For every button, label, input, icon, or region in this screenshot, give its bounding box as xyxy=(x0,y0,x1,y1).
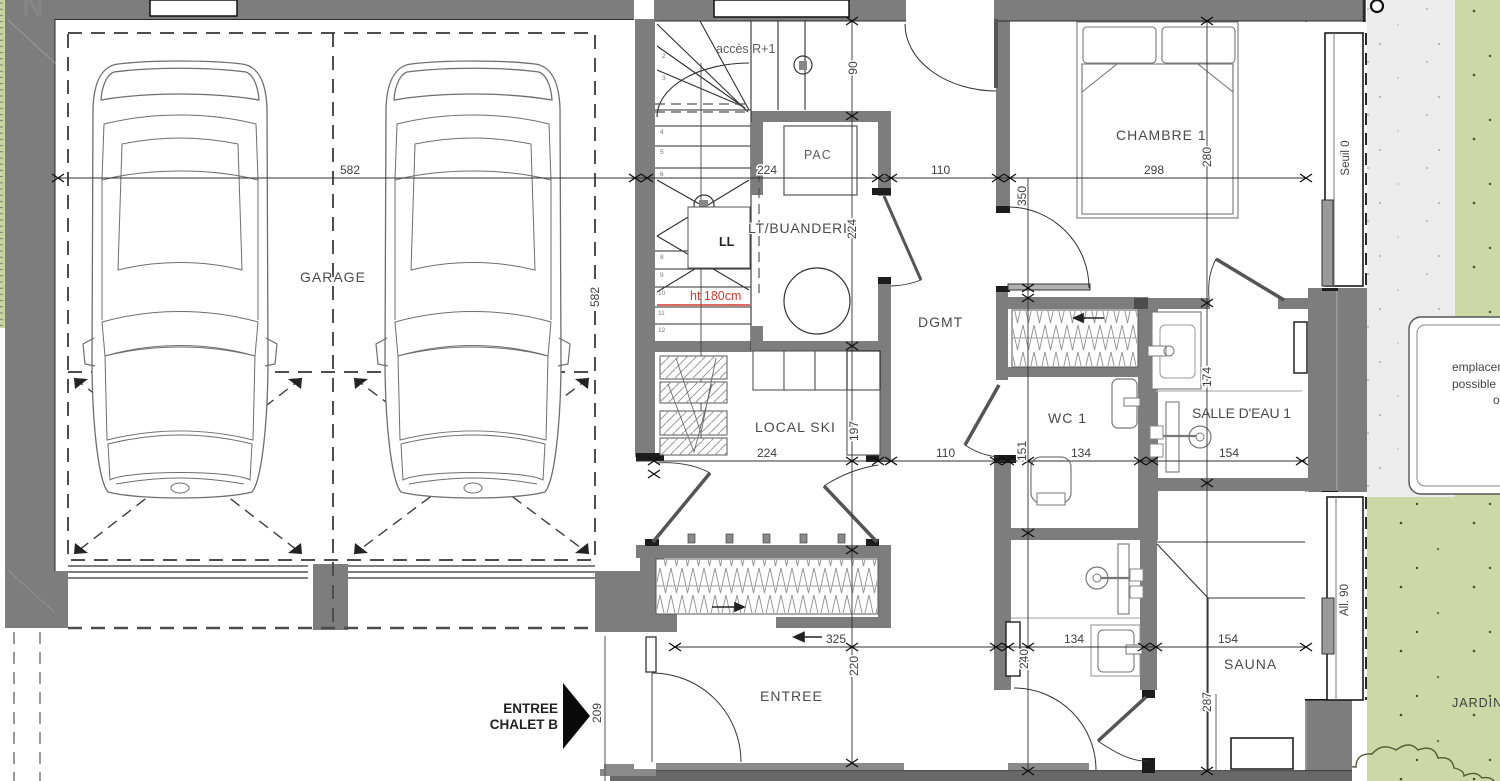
svg-text:110: 110 xyxy=(936,446,955,460)
svg-text:emplacement: emplacement xyxy=(1452,360,1500,374)
svg-text:280: 280 xyxy=(1200,147,1214,167)
svg-text:90: 90 xyxy=(846,61,860,75)
svg-text:ou: ou xyxy=(1493,393,1500,407)
svg-text:582: 582 xyxy=(340,163,360,177)
svg-text:accès R+1: accès R+1 xyxy=(716,42,775,56)
svg-text:224: 224 xyxy=(757,163,777,177)
svg-text:SAUNA: SAUNA xyxy=(1224,656,1277,672)
svg-text:All. 90: All. 90 xyxy=(1339,584,1351,616)
svg-text:110: 110 xyxy=(931,163,950,177)
svg-text:ht 180cm: ht 180cm xyxy=(690,289,741,303)
svg-text:298: 298 xyxy=(1144,163,1164,177)
svg-text:154: 154 xyxy=(1218,632,1238,646)
svg-text:154: 154 xyxy=(1219,446,1239,460)
svg-text:174: 174 xyxy=(1200,367,1214,387)
svg-text:224: 224 xyxy=(845,219,859,239)
svg-text:Seuil 0: Seuil 0 xyxy=(1340,140,1352,175)
svg-text:8: 8 xyxy=(660,254,664,261)
svg-text:582: 582 xyxy=(588,287,602,307)
svg-text:197: 197 xyxy=(847,421,861,441)
svg-text:13: 13 xyxy=(658,345,666,352)
svg-text:CHALET B: CHALET B xyxy=(490,717,558,732)
svg-text:10: 10 xyxy=(658,290,666,297)
svg-text:9: 9 xyxy=(660,272,664,279)
svg-text:151: 151 xyxy=(1015,441,1029,461)
svg-text:325: 325 xyxy=(826,632,846,646)
svg-text:DGMT: DGMT xyxy=(918,314,963,330)
svg-text:11: 11 xyxy=(658,310,665,317)
svg-text:5: 5 xyxy=(660,149,664,156)
svg-text:LT/BUANDERIE: LT/BUANDERIE xyxy=(748,220,858,236)
svg-text:N: N xyxy=(22,0,44,23)
svg-text:ENTREE: ENTREE xyxy=(760,688,823,704)
svg-text:JARDIN: JARDIN xyxy=(1452,696,1500,710)
svg-text:possible: possible xyxy=(1452,377,1496,391)
svg-text:2: 2 xyxy=(662,53,666,60)
svg-text:209: 209 xyxy=(590,703,604,723)
svg-text:240: 240 xyxy=(1017,649,1031,669)
svg-text:GARAGE: GARAGE xyxy=(300,269,366,285)
svg-text:4: 4 xyxy=(660,129,664,136)
svg-text:12: 12 xyxy=(658,327,666,334)
svg-text:ENTREE: ENTREE xyxy=(503,701,558,716)
svg-text:LOCAL SKI: LOCAL SKI xyxy=(755,419,836,435)
svg-text:3: 3 xyxy=(662,75,666,82)
svg-text:134: 134 xyxy=(1064,632,1084,646)
svg-text:WC 1: WC 1 xyxy=(1048,410,1087,426)
svg-text:134: 134 xyxy=(1071,446,1091,460)
svg-text:PAC: PAC xyxy=(804,148,832,162)
svg-text:6: 6 xyxy=(660,171,664,178)
svg-text:287: 287 xyxy=(1200,692,1214,712)
svg-text:CHAMBRE 1: CHAMBRE 1 xyxy=(1116,127,1207,143)
svg-text:LL: LL xyxy=(719,235,735,249)
svg-text:350: 350 xyxy=(1015,186,1029,206)
svg-text:224: 224 xyxy=(757,446,777,460)
svg-text:220: 220 xyxy=(847,656,861,676)
